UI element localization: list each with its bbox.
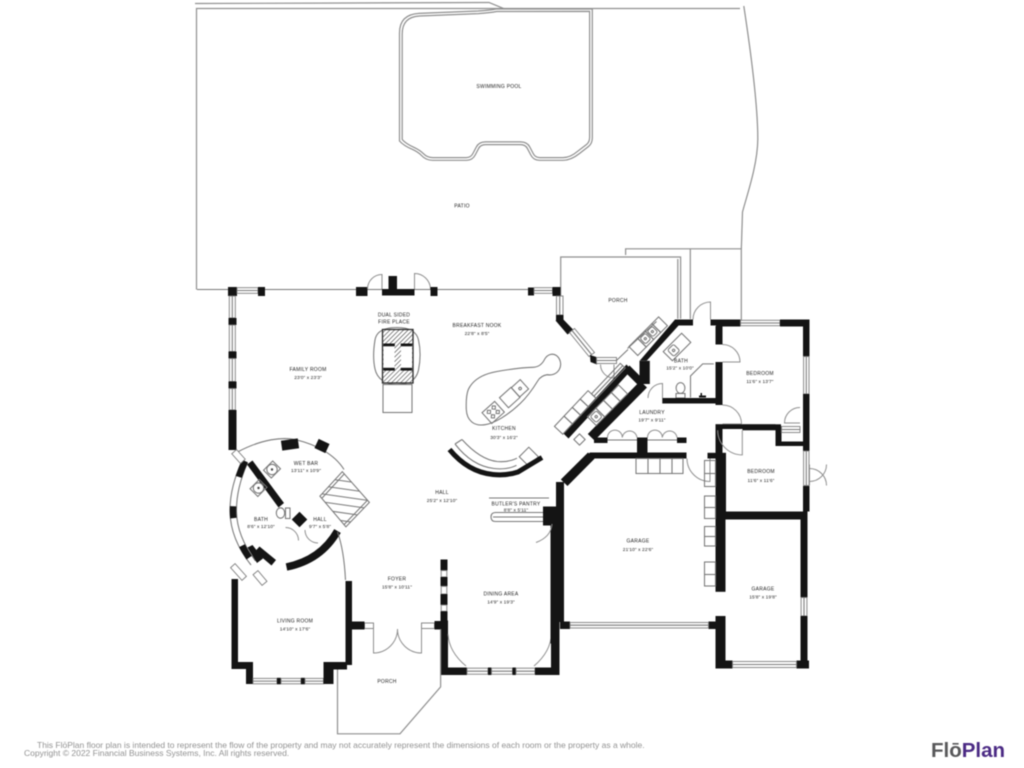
svg-text:FOYER: FOYER xyxy=(388,577,407,583)
svg-text:FIRE PLACE: FIRE PLACE xyxy=(378,320,410,326)
svg-text:WET BAR: WET BAR xyxy=(294,461,319,467)
svg-text:BUTLER'S PANTRY: BUTLER'S PANTRY xyxy=(492,502,541,508)
svg-text:KITCHEN: KITCHEN xyxy=(492,426,516,432)
svg-text:DINING AREA: DINING AREA xyxy=(484,592,519,598)
svg-text:19'7" x 9'11": 19'7" x 9'11" xyxy=(638,418,665,424)
svg-text:Copyright © 2022 Financial Bus: Copyright © 2022 Financial Business Syst… xyxy=(24,748,289,758)
svg-text:DUAL SIDED: DUAL SIDED xyxy=(378,313,410,319)
svg-text:14'10" x 17'6": 14'10" x 17'6" xyxy=(280,627,311,633)
svg-text:9'7" x 5'8": 9'7" x 5'8" xyxy=(309,524,331,530)
svg-text:22'8" x 8'5": 22'8" x 8'5" xyxy=(465,331,490,337)
svg-text:23'0" x 23'3": 23'0" x 23'3" xyxy=(294,375,322,381)
svg-text:8'6" x 12'10": 8'6" x 12'10" xyxy=(247,524,275,530)
svg-text:BATH: BATH xyxy=(254,517,268,523)
svg-text:BEDROOM: BEDROOM xyxy=(746,371,774,377)
svg-text:PORCH: PORCH xyxy=(608,298,627,304)
svg-text:BEDROOM: BEDROOM xyxy=(747,469,775,475)
svg-text:HALL: HALL xyxy=(313,517,327,523)
svg-text:LIVING ROOM: LIVING ROOM xyxy=(277,619,313,625)
svg-text:15'2" x 10'0": 15'2" x 10'0" xyxy=(666,366,694,372)
svg-text:PATIO: PATIO xyxy=(454,204,470,210)
svg-text:SWIMMING POOL: SWIMMING POOL xyxy=(476,84,521,90)
svg-text:FAMILY ROOM: FAMILY ROOM xyxy=(289,367,326,373)
svg-text:15'8" x 19'8": 15'8" x 19'8" xyxy=(749,595,777,601)
svg-text:FlōPlan: FlōPlan xyxy=(931,739,1005,762)
svg-text:GARAGE: GARAGE xyxy=(752,587,775,593)
svg-text:30'3" x 16'2": 30'3" x 16'2" xyxy=(490,435,518,441)
svg-text:BATH: BATH xyxy=(674,359,688,365)
svg-text:8'8" x 5'11": 8'8" x 5'11" xyxy=(504,508,529,514)
svg-text:GARAGE: GARAGE xyxy=(627,539,650,545)
svg-text:13'11" x 10'9": 13'11" x 10'9" xyxy=(291,468,321,474)
svg-text:11'6" x 11'6": 11'6" x 11'6" xyxy=(748,478,775,484)
svg-text:11'6" x 13'7": 11'6" x 13'7" xyxy=(746,379,773,385)
svg-text:21'10" x 22'6": 21'10" x 22'6" xyxy=(623,547,654,553)
svg-text:HALL: HALL xyxy=(435,490,449,496)
svg-text:LAUNDRY: LAUNDRY xyxy=(639,410,665,416)
svg-text:BREAKFAST NOOK: BREAKFAST NOOK xyxy=(453,323,502,329)
svg-text:PORCH: PORCH xyxy=(377,679,396,685)
svg-text:14'9" x 19'3": 14'9" x 19'3" xyxy=(487,600,515,606)
svg-text:15'8" x 10'11": 15'8" x 10'11" xyxy=(382,585,412,591)
svg-text:25'2" x 12'10": 25'2" x 12'10" xyxy=(427,498,458,504)
